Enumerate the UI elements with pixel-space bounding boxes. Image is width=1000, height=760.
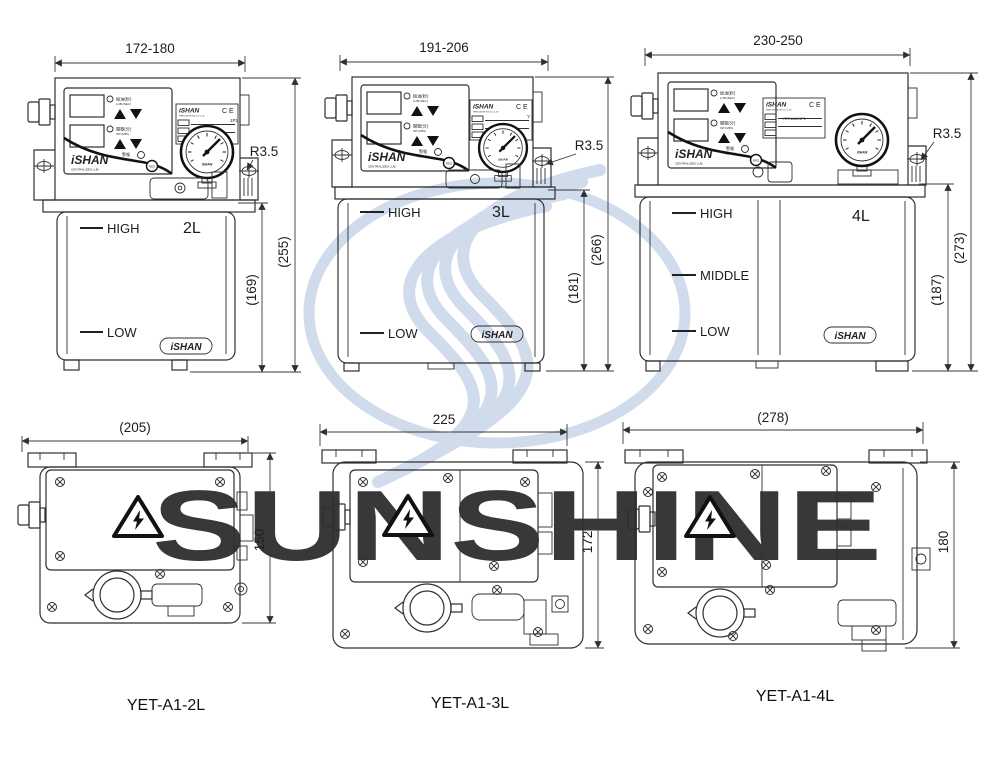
dim-depth-label: 172 [580, 531, 595, 554]
dim-overall-height-label: (273) [952, 232, 967, 264]
model-label: YET-A1-4L [756, 688, 834, 705]
mounting-tab [869, 450, 927, 463]
watermark-brand-text: SUNSHINE [152, 470, 882, 582]
level-low-label: LOW [388, 326, 418, 341]
dim-body-height: (169) [238, 203, 268, 372]
model-label: YET-A1-2L [127, 697, 205, 714]
tank-foot [344, 363, 359, 371]
filler-cap [688, 589, 755, 637]
drawing-canvas: 給油(秒) LUB.(SEC) 間歇(分) INT.(MIN) 警報 ALARM… [0, 0, 1000, 760]
dim-width-label: (205) [119, 420, 151, 435]
mounting-tab [204, 453, 252, 467]
dim-overall-height: (273) [910, 73, 978, 371]
level-low-label: LOW [700, 324, 730, 339]
fillet-label: R3.5 [250, 144, 279, 159]
dim-width-label: 191-206 [419, 40, 469, 55]
tank-foot [428, 363, 454, 369]
tank-brand-text: iSHAN [834, 331, 866, 342]
sight-strip [758, 200, 780, 355]
tank-foot [172, 360, 187, 370]
fillet-label: R3.5 [575, 138, 604, 153]
dim-depth-label: 180 [936, 531, 951, 554]
dim-depth-label: 150 [252, 529, 267, 552]
mounting-tab [513, 450, 567, 463]
model-label: YET-A1-3L [431, 695, 509, 712]
screw-icon [644, 625, 653, 634]
capacity-label: 3L [492, 204, 510, 221]
tank-foot [876, 361, 908, 371]
mounting-ear-left [332, 140, 352, 187]
dim-body-height-label: (169) [244, 274, 259, 306]
dim-depth: 180 [905, 462, 960, 648]
cable-gland [28, 99, 55, 125]
dim-body-height-label: (187) [929, 274, 944, 306]
level-high-label: HIGH [107, 221, 140, 236]
dim-width-label: 172-180 [125, 41, 175, 56]
mounting-ear-left [638, 138, 658, 185]
fillet-callout: R3.5 [546, 138, 603, 164]
filler-cap [85, 571, 152, 619]
screw-icon [341, 630, 350, 639]
front-view-2l: 172-180 1P1 HIGH LOW 2L iSHAN (255) (16 [28, 41, 301, 372]
tank-brand-text: iSHAN [481, 330, 513, 341]
base-plate [635, 185, 925, 197]
fillet-callout: R3.5 [921, 126, 961, 160]
dim-overall-height-label: (255) [276, 236, 291, 268]
capacity-label: 4L [852, 208, 870, 225]
tank-foot [756, 361, 778, 368]
fillet-label: R3.5 [933, 126, 962, 141]
capacity-label: 2L [183, 220, 201, 237]
mounting-ear-left [34, 150, 55, 200]
tank-foot [646, 361, 660, 371]
mounting-tab [322, 450, 376, 463]
dim-width: (278) [623, 410, 923, 444]
dim-width: 172-180 [55, 41, 245, 72]
filler-cap [395, 584, 462, 632]
level-low-label: LOW [107, 325, 137, 340]
base-plate [43, 200, 255, 212]
front-view-3l: 191-206 Y HIGH LOW 3L iSHAN (266) [325, 40, 614, 371]
screw-icon [56, 478, 65, 487]
cable-gland [631, 93, 658, 119]
plate-model: YET-A1A/1P1 [782, 117, 805, 121]
fillet-callout: R3.5 [247, 144, 278, 170]
plate-model: 1P1 [230, 118, 239, 123]
pump-outlet-block [753, 162, 898, 184]
mounting-tab [625, 450, 683, 463]
plate-model: Y [527, 114, 530, 119]
dim-overall-height: (255) [190, 78, 301, 372]
level-high-label: HIGH [700, 206, 733, 221]
dim-body-height: (181) [548, 190, 590, 371]
cable-gland [325, 95, 352, 121]
screw-icon [56, 552, 65, 561]
dim-width: 230-250 [645, 33, 910, 66]
screw-icon [493, 586, 502, 595]
dim-width: (205) [22, 420, 248, 452]
mounting-tab [28, 453, 76, 467]
dim-width: 191-206 [340, 40, 548, 71]
technical-drawing: 給油(秒) LUB.(SEC) 間歇(分) INT.(MIN) 警報 ALARM… [0, 0, 1000, 760]
dim-overall-height: (266) [535, 77, 614, 371]
dim-width-label: 230-250 [753, 33, 803, 48]
sunshine-watermark: SUNSHINE [152, 170, 882, 582]
screw-icon [534, 628, 543, 637]
screw-icon [48, 603, 57, 612]
level-high-label: HIGH [388, 205, 421, 220]
screw-icon [224, 603, 233, 612]
outlet-assembly [472, 594, 568, 645]
tank-foot [64, 360, 79, 370]
dim-body-height: (187) [919, 184, 954, 371]
dim-width-label: 225 [433, 412, 456, 427]
oil-tank: HIGH LOW 2L iSHAN [57, 212, 235, 370]
dim-overall-height-label: (266) [589, 234, 604, 266]
screw-icon [872, 626, 881, 635]
dim-width-label: (278) [757, 410, 789, 425]
cable-gland [18, 502, 45, 528]
tank-brand-text: iSHAN [170, 342, 202, 353]
dim-body-height-label: (181) [566, 272, 581, 304]
level-middle-label: MIDDLE [700, 268, 749, 283]
